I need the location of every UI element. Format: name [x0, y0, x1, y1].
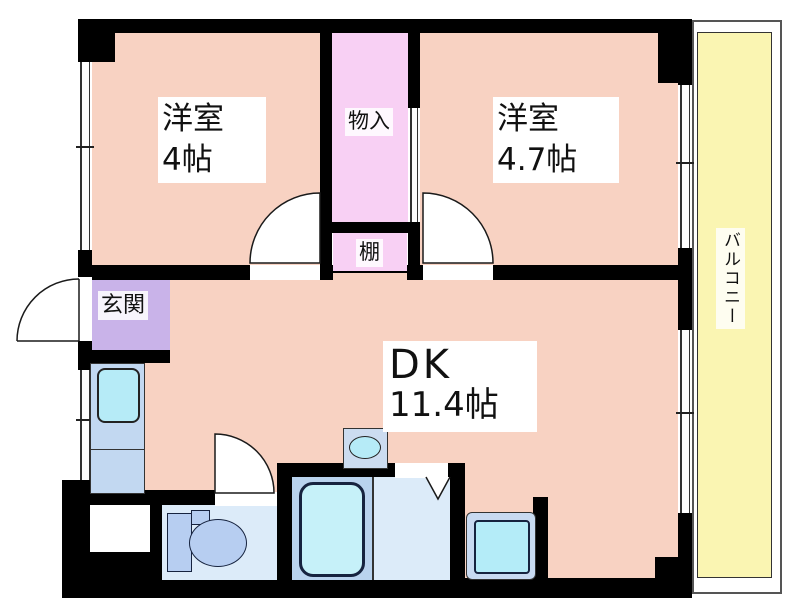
door-arc-room2 [421, 192, 495, 266]
window-tick [76, 146, 94, 148]
room-name: 洋室 [497, 99, 615, 140]
folding-door-mark [424, 476, 452, 502]
wall-below-ps [90, 552, 150, 598]
floorplan-canvas: 洋室 4帖 洋室 4.7帖 DK 11.4帖 物入 棚 玄関 バルコニー [0, 0, 800, 612]
label-balcony: バルコニー [716, 228, 745, 329]
door-arc-entrance [15, 275, 81, 343]
wash-basin-bowl [349, 436, 381, 459]
room-size: 4.7帖 [497, 140, 615, 181]
label-shelf: 棚 [356, 239, 383, 267]
kitchen-sink [97, 368, 140, 423]
wall-mid-d [493, 265, 678, 280]
room-size: 4帖 [162, 140, 262, 181]
wall-bath-left [277, 463, 292, 598]
washing-machine [474, 520, 530, 574]
wall-closet-shelf [320, 222, 420, 233]
label-dk: DK 11.4帖 [383, 341, 537, 432]
room-name: 洋室 [162, 99, 262, 140]
wall-right-a [678, 33, 692, 85]
wall-mid-c [407, 265, 423, 280]
window-tick [676, 162, 694, 164]
room-size: 11.4帖 [389, 386, 531, 425]
wall-toilet-left [150, 490, 162, 598]
closet-sliding-door [408, 108, 420, 222]
window-dk-balcony [678, 330, 692, 513]
wall-right-b [678, 248, 692, 330]
door-opening-room1 [250, 265, 320, 280]
door-opening-room2 [423, 265, 493, 280]
wall-left-b [78, 250, 92, 277]
window-room2-balcony [678, 85, 692, 248]
door-arc-toilet [213, 433, 277, 495]
label-entrance: 玄関 [98, 291, 148, 320]
label-western-room-1: 洋室 4帖 [158, 97, 266, 183]
room-name: DK [389, 344, 531, 386]
label-closet: 物入 [345, 108, 393, 136]
wall-mid-b [320, 265, 333, 280]
wall-top [78, 19, 692, 33]
bathtub [299, 482, 365, 577]
label-western-room-2: 洋室 4.7帖 [493, 97, 619, 183]
toilet-bowl [189, 519, 247, 567]
window-left-top [78, 62, 92, 250]
wall-mid-a [92, 265, 250, 280]
wall-closet-room2-top [408, 33, 420, 108]
door-arc-room1 [248, 192, 322, 266]
wall-step-bottomright [655, 557, 692, 598]
shelf-under-patch [333, 273, 407, 280]
wall-left-a [78, 33, 92, 62]
wall-entrance-bottom [92, 350, 170, 363]
window-tick [676, 412, 694, 414]
pipe-space [90, 505, 150, 552]
